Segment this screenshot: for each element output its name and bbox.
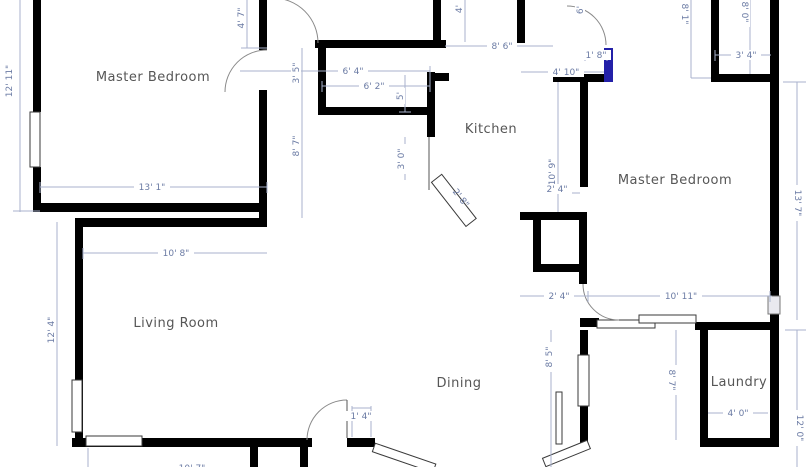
door-arc [273, 0, 318, 43]
door-leaf-angled [431, 174, 476, 226]
window [86, 436, 142, 446]
wall [250, 447, 258, 467]
wall [318, 43, 326, 115]
wall [579, 212, 587, 271]
wall [770, 0, 779, 297]
wall [315, 40, 446, 48]
dimension-label: 13' 1" [139, 183, 166, 193]
dimension-label: 3' 5" [292, 63, 302, 84]
window [556, 392, 562, 444]
room-label-laundry: Laundry [711, 375, 767, 390]
dimension-label: 4' [455, 5, 465, 13]
wall [580, 80, 588, 187]
dimension-label: 12' 4" [47, 317, 57, 344]
window-angled [543, 440, 591, 466]
room-label-master-bedroom-left: Master Bedroom [96, 70, 210, 85]
dimension-label: 8' 7" [292, 136, 302, 157]
wall [259, 90, 267, 227]
dimension-label: 8' 6" [492, 42, 513, 52]
dimension-label: 3' 4" [736, 51, 757, 61]
wall [533, 264, 587, 272]
wall [433, 0, 441, 42]
window [639, 315, 696, 323]
dimension-label: 10' 9" [548, 159, 558, 186]
dimension-label: 3' 0" [397, 149, 407, 170]
dimension-label: 6' [576, 6, 586, 14]
door-arc [567, 6, 606, 45]
wall [770, 314, 779, 447]
door-arc [307, 400, 347, 440]
dimension-label: 4' 10" [553, 68, 580, 78]
wall [700, 322, 708, 447]
dimension-label: 12' 0" [794, 415, 804, 442]
room-label-living-room: Living Room [133, 316, 218, 331]
wall [300, 445, 308, 467]
wall [580, 318, 599, 327]
dimension-label: 2' 4" [549, 292, 570, 302]
dimension-label: 8' 5" [545, 347, 555, 368]
floor-plan-canvas: 12' 11" 13' 1" 4' 7" 6' 4" 6' 2" 3' 5" 8… [0, 0, 809, 467]
wall [33, 203, 267, 212]
window [30, 112, 40, 167]
window-angled [372, 443, 435, 467]
dimension-label: 1' 8" [586, 51, 607, 61]
wall [579, 268, 587, 284]
dimension-label: 12' 11" [5, 65, 15, 97]
wall [711, 74, 773, 82]
wall [259, 0, 267, 50]
wall [700, 438, 779, 447]
dimension-label: 10' 11" [665, 292, 697, 302]
floor-plan: 12' 11" 13' 1" 4' 7" 6' 4" 6' 2" 3' 5" 8… [0, 0, 809, 467]
dimension-label: 13' 7" [792, 190, 802, 217]
dimension-label: 8' 0" [739, 2, 749, 23]
dimension-label: 6' 2" [364, 82, 385, 92]
dimension-label: 8' 7" [666, 370, 676, 391]
room-label-kitchen: Kitchen [465, 122, 517, 137]
dimension-label: 2' 4" [547, 185, 568, 195]
wall [580, 330, 588, 356]
wall [347, 438, 375, 447]
room-label-dining: Dining [437, 376, 482, 391]
wall [533, 212, 541, 271]
room-label-master-bedroom-right: Master Bedroom [618, 173, 732, 188]
dimension-label: 6' 4" [343, 67, 364, 77]
wall [33, 0, 41, 112]
wall [75, 218, 267, 227]
dimension-label: 4' 7" [237, 8, 247, 29]
window [578, 355, 589, 406]
wall [517, 0, 525, 43]
dimension-label: 10' 8" [163, 249, 190, 259]
dimension-label: 4' 0" [728, 409, 749, 419]
wall [318, 107, 435, 115]
wall [711, 0, 719, 82]
window [72, 380, 82, 432]
wall [427, 72, 435, 137]
wall [520, 212, 587, 220]
dimension-label: 1' 4" [351, 412, 372, 422]
dimension-label: 8' 1" [679, 4, 689, 25]
dimension-label: 5' [396, 92, 406, 100]
